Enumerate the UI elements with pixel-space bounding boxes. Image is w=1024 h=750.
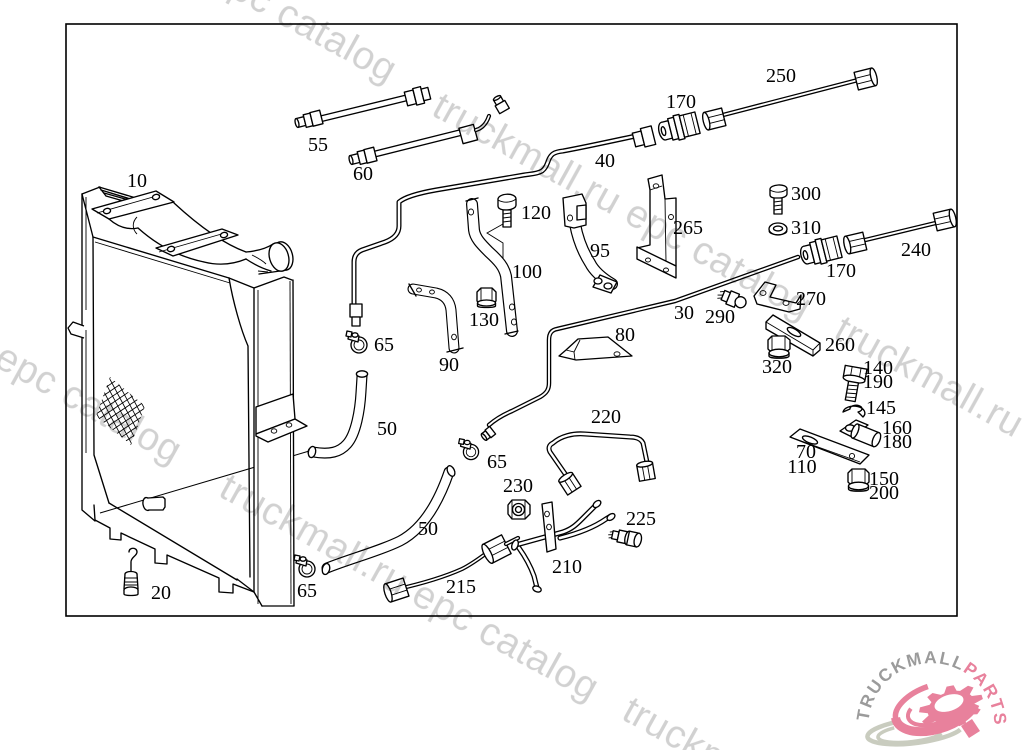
svg-text:300: 300 <box>791 183 821 205</box>
svg-text:240: 240 <box>901 239 931 261</box>
svg-text:110: 110 <box>787 456 816 478</box>
svg-text:20: 20 <box>151 582 171 604</box>
svg-text:310: 310 <box>791 217 821 239</box>
svg-text:210: 210 <box>552 556 582 578</box>
svg-text:220: 220 <box>591 406 621 428</box>
svg-text:130: 130 <box>469 309 499 331</box>
svg-text:10: 10 <box>127 170 147 192</box>
svg-text:270: 270 <box>796 288 826 310</box>
svg-text:320: 320 <box>762 356 792 378</box>
svg-text:65: 65 <box>487 451 507 473</box>
svg-text:180: 180 <box>882 431 912 453</box>
svg-text:120: 120 <box>521 202 551 224</box>
svg-text:50: 50 <box>418 518 438 540</box>
svg-text:190: 190 <box>863 371 893 393</box>
svg-text:290: 290 <box>705 306 735 328</box>
svg-text:30: 30 <box>674 302 694 324</box>
svg-text:90: 90 <box>439 354 459 376</box>
svg-text:170: 170 <box>666 91 696 113</box>
svg-text:65: 65 <box>374 334 394 356</box>
svg-text:60: 60 <box>353 163 373 185</box>
svg-text:80: 80 <box>615 324 635 346</box>
svg-text:265: 265 <box>673 217 703 239</box>
svg-text:215: 215 <box>446 576 476 598</box>
svg-text:100: 100 <box>512 261 542 283</box>
svg-text:250: 250 <box>766 65 796 87</box>
svg-text:200: 200 <box>869 482 899 504</box>
svg-text:40: 40 <box>595 150 615 172</box>
svg-text:55: 55 <box>308 134 328 156</box>
svg-text:225: 225 <box>626 508 656 530</box>
svg-text:65: 65 <box>297 580 317 602</box>
svg-text:95: 95 <box>590 240 610 262</box>
svg-text:170: 170 <box>826 260 856 282</box>
svg-text:145: 145 <box>866 397 896 419</box>
svg-text:260: 260 <box>825 334 855 356</box>
svg-text:50: 50 <box>377 418 397 440</box>
svg-text:230: 230 <box>503 475 533 497</box>
